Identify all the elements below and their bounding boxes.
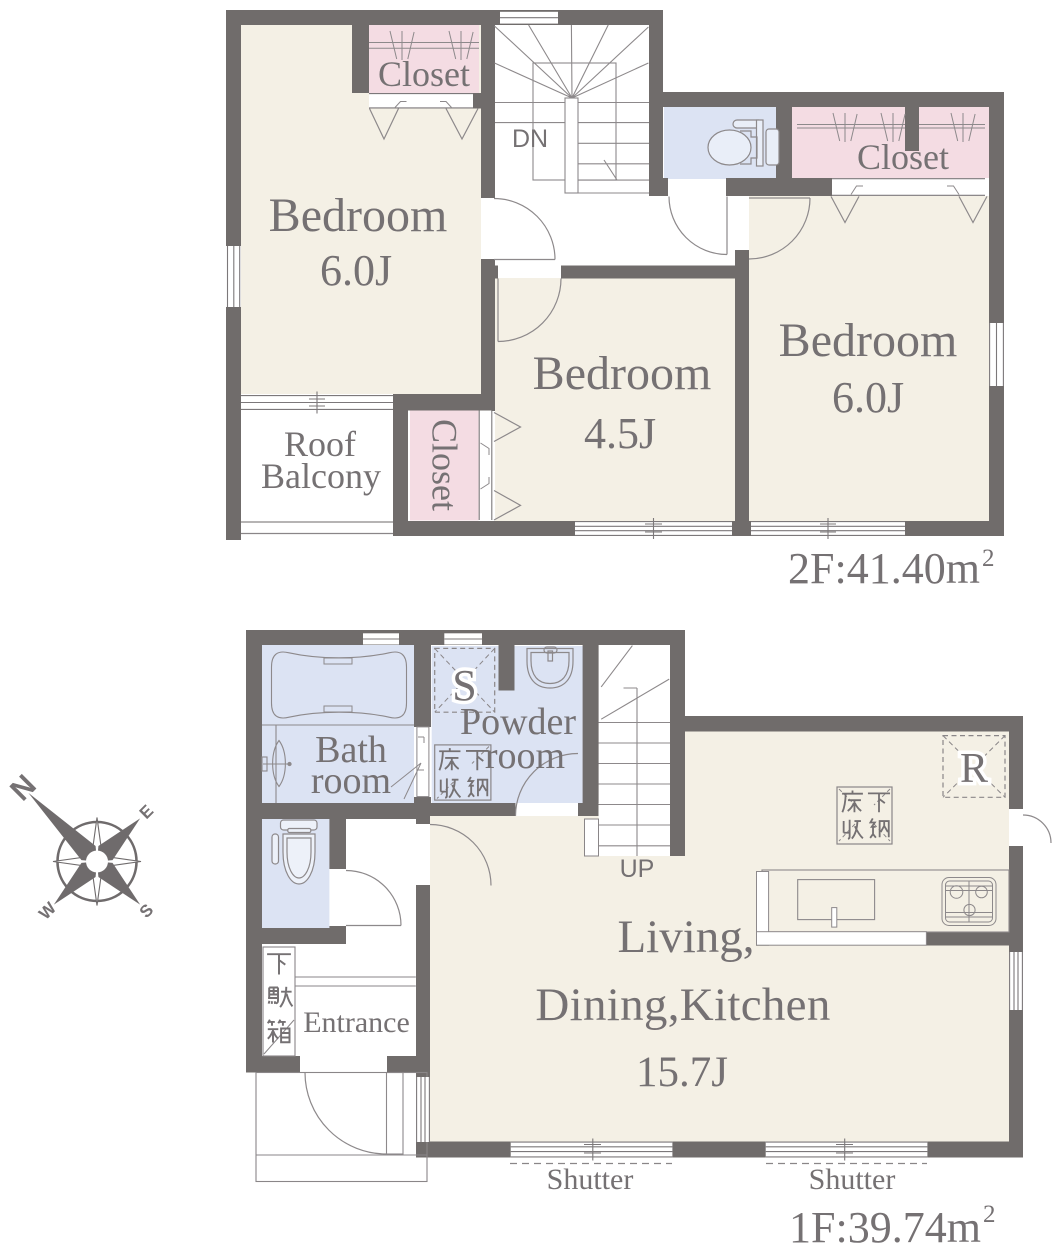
svg-text:Closet: Closet	[378, 54, 470, 94]
svg-text:6.0J: 6.0J	[320, 246, 392, 295]
svg-text:Balcony: Balcony	[261, 456, 381, 496]
svg-text:2F:41.40m: 2F:41.40m	[788, 544, 980, 593]
svg-text:4.5J: 4.5J	[584, 409, 656, 458]
svg-text:room: room	[311, 760, 391, 802]
svg-text:2: 2	[983, 1201, 996, 1228]
svg-text:Shutter: Shutter	[547, 1163, 634, 1196]
svg-text:Closet: Closet	[857, 137, 949, 177]
svg-text:DN: DN	[512, 125, 548, 153]
svg-text:Bedroom: Bedroom	[533, 347, 712, 400]
svg-text:15.7J: 15.7J	[636, 1049, 728, 1096]
svg-text:Bedroom: Bedroom	[779, 314, 958, 367]
svg-text:2: 2	[982, 545, 995, 572]
svg-text:UP: UP	[620, 855, 655, 883]
svg-text:Entrance: Entrance	[303, 1006, 410, 1039]
svg-text:room: room	[485, 735, 565, 777]
svg-text:Living,: Living,	[617, 911, 754, 963]
svg-text:6.0J: 6.0J	[832, 373, 904, 422]
svg-text:1F:39.74m: 1F:39.74m	[789, 1203, 981, 1252]
svg-text:Dining,Kitchen: Dining,Kitchen	[535, 979, 830, 1031]
svg-text:R: R	[960, 746, 988, 792]
svg-text:Shutter: Shutter	[809, 1163, 896, 1196]
svg-text:Closet: Closet	[425, 419, 465, 511]
svg-text:Bedroom: Bedroom	[269, 189, 448, 242]
